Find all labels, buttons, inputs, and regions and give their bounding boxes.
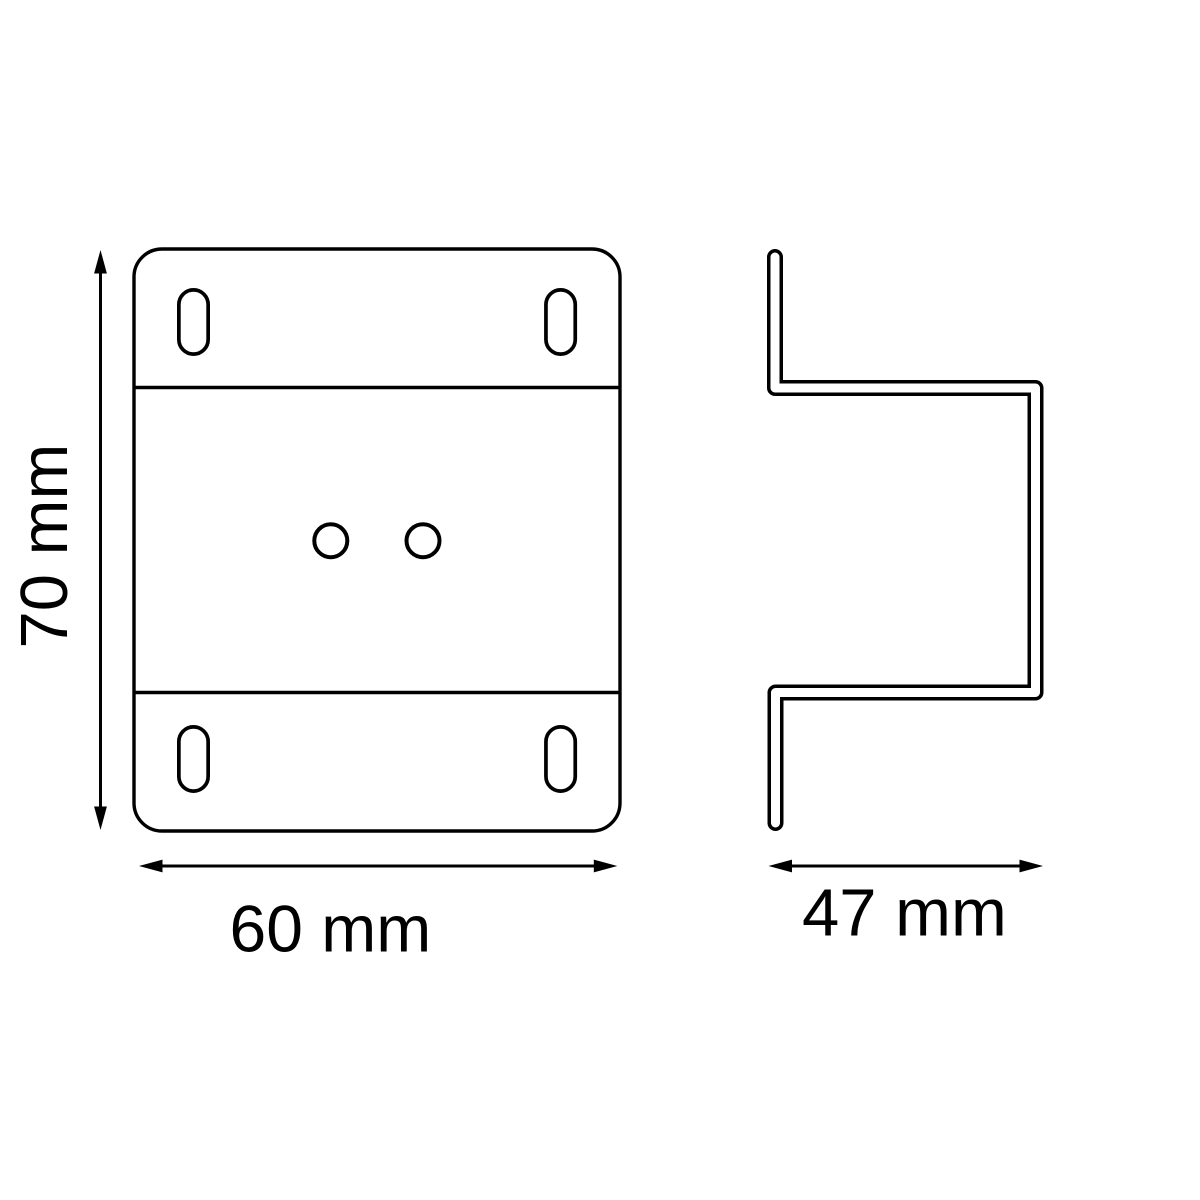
svg-text:47 mm: 47 mm <box>802 876 1007 951</box>
svg-text:60 mm: 60 mm <box>230 892 432 966</box>
svg-text:70 mm: 70 mm <box>7 444 82 649</box>
